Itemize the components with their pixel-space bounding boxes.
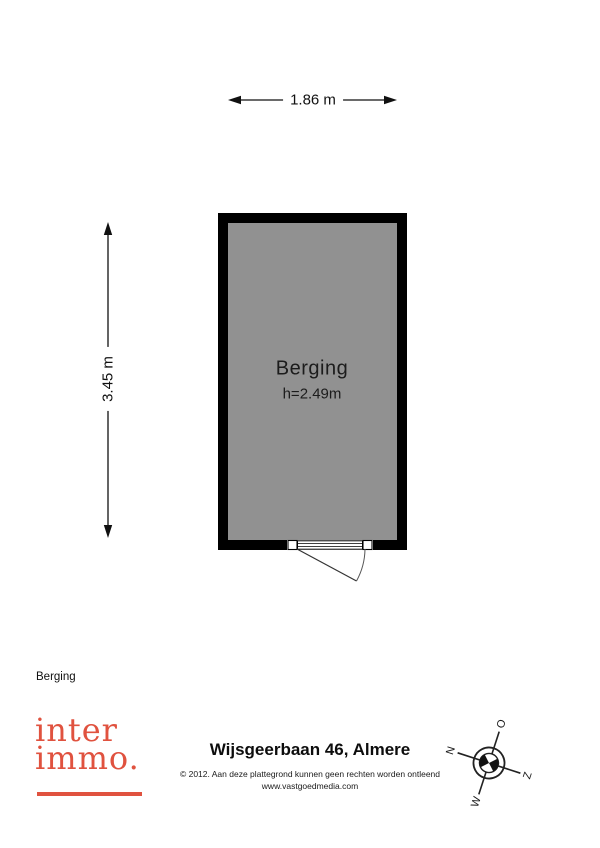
- arrowhead-left-icon: [228, 96, 241, 104]
- door-threshold: [298, 541, 363, 549]
- compass-south-label: Z: [521, 770, 535, 780]
- footer: Wijsgeerbaan 46, Almere © 2012. Aan deze…: [150, 740, 470, 791]
- compass-east-label: O: [495, 718, 509, 730]
- arrowhead-right-icon: [384, 96, 397, 104]
- legend-room-label: Berging: [36, 671, 76, 683]
- floorplan-page: 1.86 m 3.45 m Berging h=2.49m Berging in…: [0, 0, 600, 848]
- height-dimension-label: 3.45 m: [100, 347, 117, 411]
- door-leaf: [297, 549, 357, 581]
- door-post-right: [363, 541, 372, 550]
- room-label: Berging h=2.49m: [212, 358, 412, 403]
- room-name: Berging: [212, 358, 412, 381]
- logo-line2: immo.: [35, 744, 140, 772]
- interimmo-logo: inter immo.: [35, 716, 140, 772]
- website-text: www.vastgoedmedia.com: [150, 781, 470, 791]
- compass-north-label: N: [444, 745, 458, 756]
- room-ceiling-height: h=2.49m: [212, 386, 412, 403]
- door-swing-arc: [357, 549, 366, 581]
- logo-underline: [37, 792, 142, 796]
- arrowhead-down-icon: [104, 525, 112, 538]
- compass-rose: N O Z W: [434, 708, 544, 818]
- address-title: Wijsgeerbaan 46, Almere: [150, 740, 470, 760]
- width-dimension-label: 1.86 m: [283, 92, 343, 109]
- compass-west-label: W: [469, 795, 484, 809]
- door-post-left: [288, 541, 297, 550]
- door: [287, 540, 373, 581]
- copyright-text: © 2012. Aan deze plattegrond kunnen geen…: [150, 769, 470, 779]
- arrowhead-up-icon: [104, 222, 112, 235]
